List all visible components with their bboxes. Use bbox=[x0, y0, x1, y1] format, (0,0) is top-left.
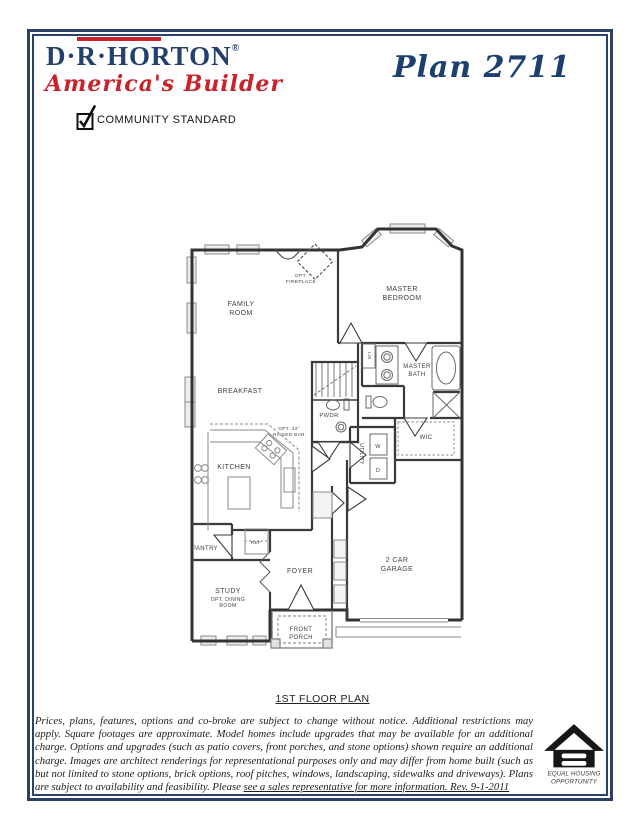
brand-text: D·R·HORTON bbox=[46, 41, 232, 71]
label-pwdr: PWDR bbox=[319, 413, 338, 419]
kitchen-fixtures bbox=[195, 424, 299, 554]
eho-roof bbox=[544, 724, 604, 751]
label-dryer: D bbox=[376, 468, 380, 474]
equal-housing-logo: EQUAL HOUSING OPPORTUNITY bbox=[541, 723, 607, 787]
label-opt-fireplace: OPT. bbox=[295, 273, 307, 279]
label-washer: W bbox=[375, 444, 381, 450]
label-utility: UTILITY bbox=[358, 443, 364, 465]
label-raised-bar-2: RAISED BAR bbox=[273, 432, 305, 437]
label-family-room-2: ROOM bbox=[229, 310, 252, 317]
label-master-bedroom-2: BEDROOM bbox=[383, 295, 422, 302]
label-wic: WIC bbox=[420, 435, 433, 441]
brand-tagline: America's Builder bbox=[45, 71, 283, 97]
label-pantry: PANTRY bbox=[192, 546, 218, 552]
eho-equals-top bbox=[562, 753, 587, 758]
label-master-bath: MASTER bbox=[403, 364, 431, 370]
checkbox-checked-icon bbox=[73, 102, 99, 132]
label-ref: REF bbox=[251, 540, 262, 546]
label-raised-bar: OPT. 42" bbox=[278, 426, 299, 431]
stairs bbox=[312, 363, 358, 400]
community-standard-label: COMMUNITY STANDARD bbox=[97, 114, 236, 126]
brand-logo: D·R·HORTON® bbox=[46, 41, 239, 72]
label-family-room: FAMILY bbox=[228, 301, 255, 308]
label-garage: 2 CAR bbox=[386, 557, 409, 564]
label-master-bath-2: BATH bbox=[408, 372, 425, 378]
eho-text-1: EQUAL HOUSING bbox=[547, 771, 600, 778]
wall-niches bbox=[313, 492, 346, 603]
label-foyer: FOYER bbox=[287, 568, 313, 575]
floor-plan-drawing: FAMILY ROOM OPT. FIREPLACE MASTER BEDROO… bbox=[168, 192, 480, 664]
disclaimer: EQUAL HOUSING OPPORTUNITY Prices, plans,… bbox=[35, 715, 607, 794]
flyer-page: D·R·HORTON® America's Builder Plan 2711 … bbox=[0, 0, 639, 830]
label-kitchen: KITCHEN bbox=[217, 464, 251, 471]
label-front-porch: FRONT bbox=[290, 627, 313, 633]
label-study-3: ROOM bbox=[219, 603, 236, 609]
floor-plan-caption: 1ST FLOOR PLAN bbox=[225, 693, 420, 705]
cased-opening-zigzag bbox=[260, 552, 270, 592]
registered-mark: ® bbox=[232, 43, 239, 54]
label-front-porch-2: PORCH bbox=[289, 635, 313, 641]
eho-equals-bottom bbox=[562, 761, 587, 766]
label-lin: LIN bbox=[367, 352, 372, 360]
bath-fixtures bbox=[362, 344, 460, 418]
equal-housing-icon: EQUAL HOUSING OPPORTUNITY bbox=[541, 723, 607, 787]
eho-text-2: OPPORTUNITY bbox=[551, 778, 598, 785]
label-study: STUDY bbox=[215, 588, 241, 595]
disclaimer-underlined: see a sales representative for more info… bbox=[244, 781, 510, 793]
label-garage-2: GARAGE bbox=[381, 566, 413, 573]
label-opt-fireplace-2: FIREPLACE bbox=[286, 279, 316, 285]
label-master-bedroom: MASTER bbox=[386, 286, 418, 293]
plan-title: Plan 2711 bbox=[393, 50, 571, 85]
label-breakfast: BREAKFAST bbox=[218, 388, 263, 395]
